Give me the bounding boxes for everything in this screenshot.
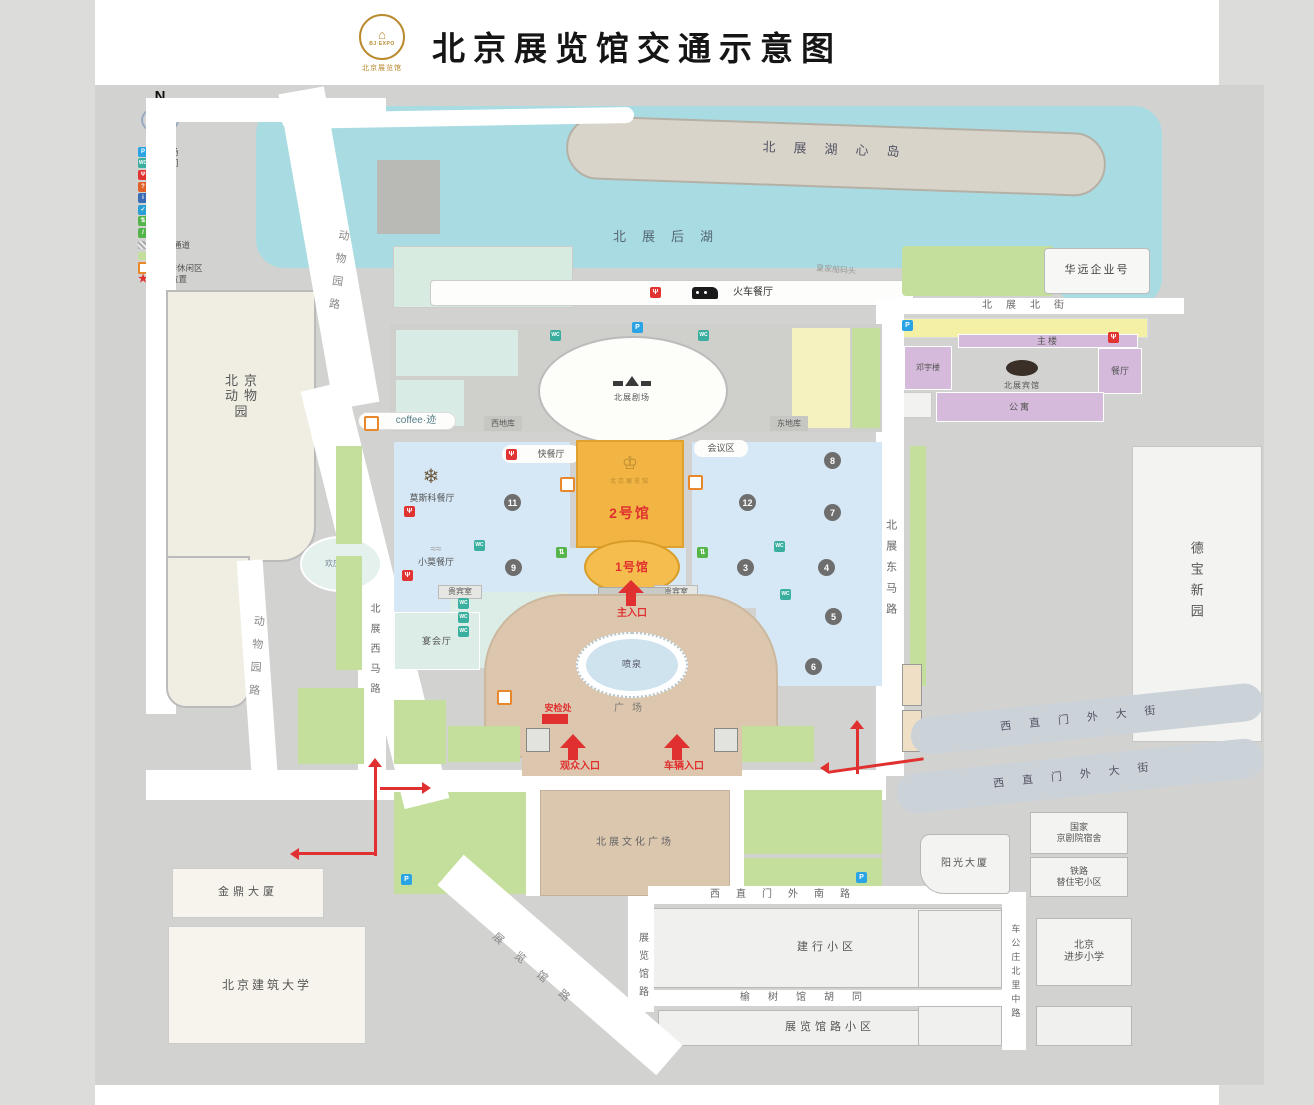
parking-icon: P [902, 320, 913, 331]
halls-east-block [692, 442, 882, 608]
parking-icon: P [401, 874, 412, 885]
wc-icon: WC [458, 598, 469, 609]
green-west-3 [298, 688, 364, 764]
debao-label: 德宝新园 [1186, 528, 1206, 638]
moscow-restaurant-logo: ❄ [416, 464, 446, 490]
theater [538, 336, 728, 446]
hall-3-marker: 3 [737, 559, 754, 576]
elevator-icon: ⇅ [556, 547, 567, 558]
complex-green-east [852, 328, 880, 428]
route-arrow-sw-up [368, 758, 382, 767]
coffee-icon [497, 690, 512, 705]
culture-road-west [526, 790, 540, 896]
train-restaurant-label: 火车餐厅 [722, 286, 784, 300]
main-entrance-label: 主入口 [604, 607, 660, 620]
culture-road-east [730, 790, 744, 896]
lake-label: 北展后湖 [596, 228, 746, 246]
xiaomo-restaurant-label: 小莫餐厅 [406, 556, 466, 568]
main-entrance-arrow-head [618, 580, 644, 593]
complex-room-a [396, 330, 518, 376]
apartment-block: 公寓 [936, 392, 1104, 422]
restaurant-icon: Ψ [404, 506, 415, 517]
train-restaurant-strip [430, 280, 914, 306]
security-check-label: 安检处 [534, 702, 582, 714]
hall-2-emblem: ♔ [616, 452, 644, 476]
hotel-restaurant-block: 餐厅 [1098, 348, 1142, 394]
train-window [696, 291, 699, 294]
vehicle-entrance-arrow-head [664, 734, 690, 748]
vehicle-entrance-label: 车辆入口 [652, 760, 716, 773]
wc-icon: WC [780, 589, 791, 600]
route-line-sw-horizontal [298, 852, 376, 855]
wc-icon: WC [458, 626, 469, 637]
left-margin [0, 0, 95, 1105]
fastfood-label: 快餐厅 [524, 448, 578, 461]
zoo-label: 北京 动物 园 [218, 348, 270, 444]
se-block-a [918, 910, 1002, 988]
audience-entrance-arrow-stem [568, 748, 578, 760]
vip-room-west: 贵宾室 [438, 585, 482, 599]
wc-icon: WC [774, 541, 785, 552]
coffee-label: coffee·迹 [380, 414, 452, 427]
east-garage-tab: 东地库 [770, 416, 808, 431]
zhanlanguan-road-vertical-label: 展览馆路 [634, 922, 649, 1014]
audience-entrance-label: 观众入口 [548, 760, 612, 773]
coffee-icon [364, 416, 379, 431]
hall-4-marker: 4 [818, 559, 835, 576]
se-block-b [918, 1006, 1002, 1046]
plaza-label: 广场 [604, 702, 660, 715]
parking-icon: P [632, 322, 643, 333]
dengyulou-block: 邓宇楼 [904, 346, 952, 390]
ne-green [902, 246, 1054, 296]
gate-kiosk-west [526, 728, 550, 752]
gate-kiosk-east [714, 728, 738, 752]
parking-icon: P [856, 872, 867, 883]
green-gate-east [742, 726, 814, 762]
wc-icon: WC [474, 540, 485, 551]
hall-5-marker: 5 [825, 608, 842, 625]
logo-text: BJ·EXPO [369, 41, 394, 47]
xiaomo-restaurant-logo: ≈≈ [414, 544, 458, 556]
route-arrow-se-up [850, 720, 864, 729]
theater-building-part [613, 381, 623, 386]
fountain-label: 喷泉 [614, 658, 650, 671]
hall-7-marker: 7 [824, 504, 841, 521]
coffee-icon [560, 477, 575, 492]
hotel-label: 北展宾馆 [992, 380, 1052, 391]
west-road-label: 北展西马路 [365, 588, 381, 718]
beizhanbeijie-label: 北展北街 [935, 299, 1125, 313]
east-green-strip [910, 446, 926, 686]
green-south-east [744, 790, 882, 854]
hall-9-marker: 9 [505, 559, 522, 576]
route-arrow-sw-left [290, 848, 299, 860]
page-title: 北京展览馆交通示意图 [432, 22, 842, 70]
hall-2-emblem-text: 北京展览馆 [600, 478, 660, 487]
route-arrow-se-left [820, 762, 829, 774]
hall-8-marker: 8 [824, 452, 841, 469]
restaurant-icon: Ψ [650, 287, 661, 298]
hall-2-label: 2号馆 [600, 504, 660, 522]
theater-building-part [641, 381, 651, 386]
beijing-exhibition-center-map: ⌂ BJ·EXPO 北京展览馆 北京展览馆交通示意图 N P停车场WC洗手间Ψ餐… [0, 0, 1314, 1105]
route-arrow-south-right [422, 782, 431, 794]
hall-11-marker: 11 [504, 494, 521, 511]
route-line-south [380, 787, 422, 790]
restaurant-icon: Ψ [402, 570, 413, 581]
moscow-restaurant-label: 莫斯科餐厅 [398, 492, 466, 504]
xizhimenwai-south-label: 西直门外南路 [682, 888, 894, 902]
building-icon: ⌂ [378, 28, 386, 41]
green-gate-west [448, 726, 520, 762]
audience-entrance-arrow-head [560, 734, 586, 748]
se-block-c [1036, 1006, 1132, 1046]
conference-tab: 会议区 [694, 440, 748, 457]
vehicle-entrance-arrow-stem [672, 748, 682, 760]
coffee-icon [688, 475, 703, 490]
restaurant-icon: Ψ [1108, 332, 1119, 343]
wc-icon: WC [698, 330, 709, 341]
huayuan-block: 华远企业号 [1044, 248, 1150, 294]
theater-building-part [625, 376, 639, 386]
bjexpo-logo: ⌂ BJ·EXPO 北京展览馆 [350, 14, 414, 80]
complex-yellow-block [792, 328, 850, 428]
wc-icon: WC [458, 612, 469, 623]
culture-square-label: 北展文化广场 [572, 836, 698, 850]
chegongzhuang-road-label: 车公庄北里中路 [1008, 898, 1022, 1048]
theater-building-icon [612, 372, 652, 386]
bjexpo-logo-emblem: ⌂ BJ·EXPO [359, 14, 405, 60]
route-line-sw-vertical [374, 766, 377, 856]
hotel-logo [1006, 360, 1038, 376]
jinbu-school-block: 北京 进步小学 [1036, 918, 1132, 986]
yangguang-block: 阳光大厦 [920, 834, 1010, 894]
jinding-block: 金鼎大厦 [172, 868, 324, 918]
green-west-4 [394, 700, 446, 764]
wc-icon: WC [550, 330, 561, 341]
restaurant-icon: Ψ [506, 449, 517, 460]
train-window [704, 291, 707, 294]
green-west-1 [336, 446, 362, 544]
hall-12-marker: 12 [739, 494, 756, 511]
east-road-label: 北展东马路 [882, 496, 898, 646]
main-entrance-arrow-stem [626, 593, 636, 606]
west-garage-tab: 西地库 [484, 416, 522, 431]
logo-subtext: 北京展览馆 [362, 63, 402, 73]
jingju-dorm-block: 国家 京剧院宿舍 [1030, 812, 1128, 854]
nw-edge-road [146, 98, 386, 122]
yushuguan-label: 榆树馆胡同 [690, 991, 930, 1005]
hall-6-marker: 6 [805, 658, 822, 675]
elevator-icon: ⇅ [697, 547, 708, 558]
theater-label: 北展剧场 [600, 392, 664, 404]
east-kiosk-1 [902, 664, 922, 706]
train-icon [692, 287, 718, 299]
tielu-block: 铁路 替住宅小区 [1030, 857, 1128, 897]
nw-grey-block [377, 160, 440, 234]
jianzhu-univ-block: 北京建筑大学 [168, 926, 366, 1044]
green-west-2 [336, 556, 362, 670]
